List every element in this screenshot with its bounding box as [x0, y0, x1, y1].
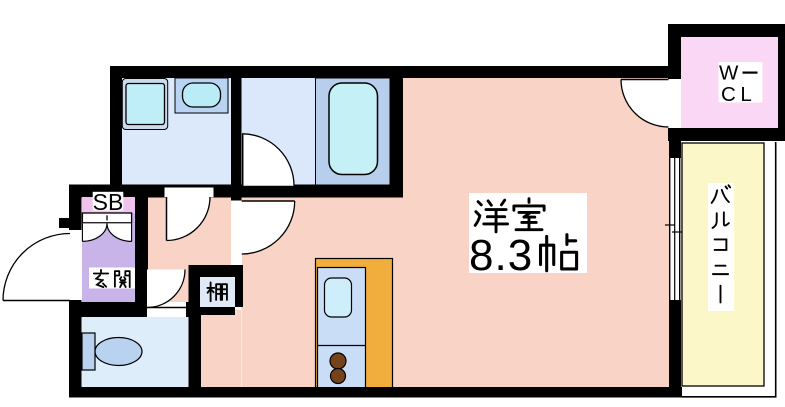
svg-text:SB: SB	[93, 189, 124, 215]
svg-text:W: W	[719, 61, 739, 84]
svg-text:CL: CL	[721, 83, 756, 106]
svg-text:8.3: 8.3	[469, 231, 533, 280]
